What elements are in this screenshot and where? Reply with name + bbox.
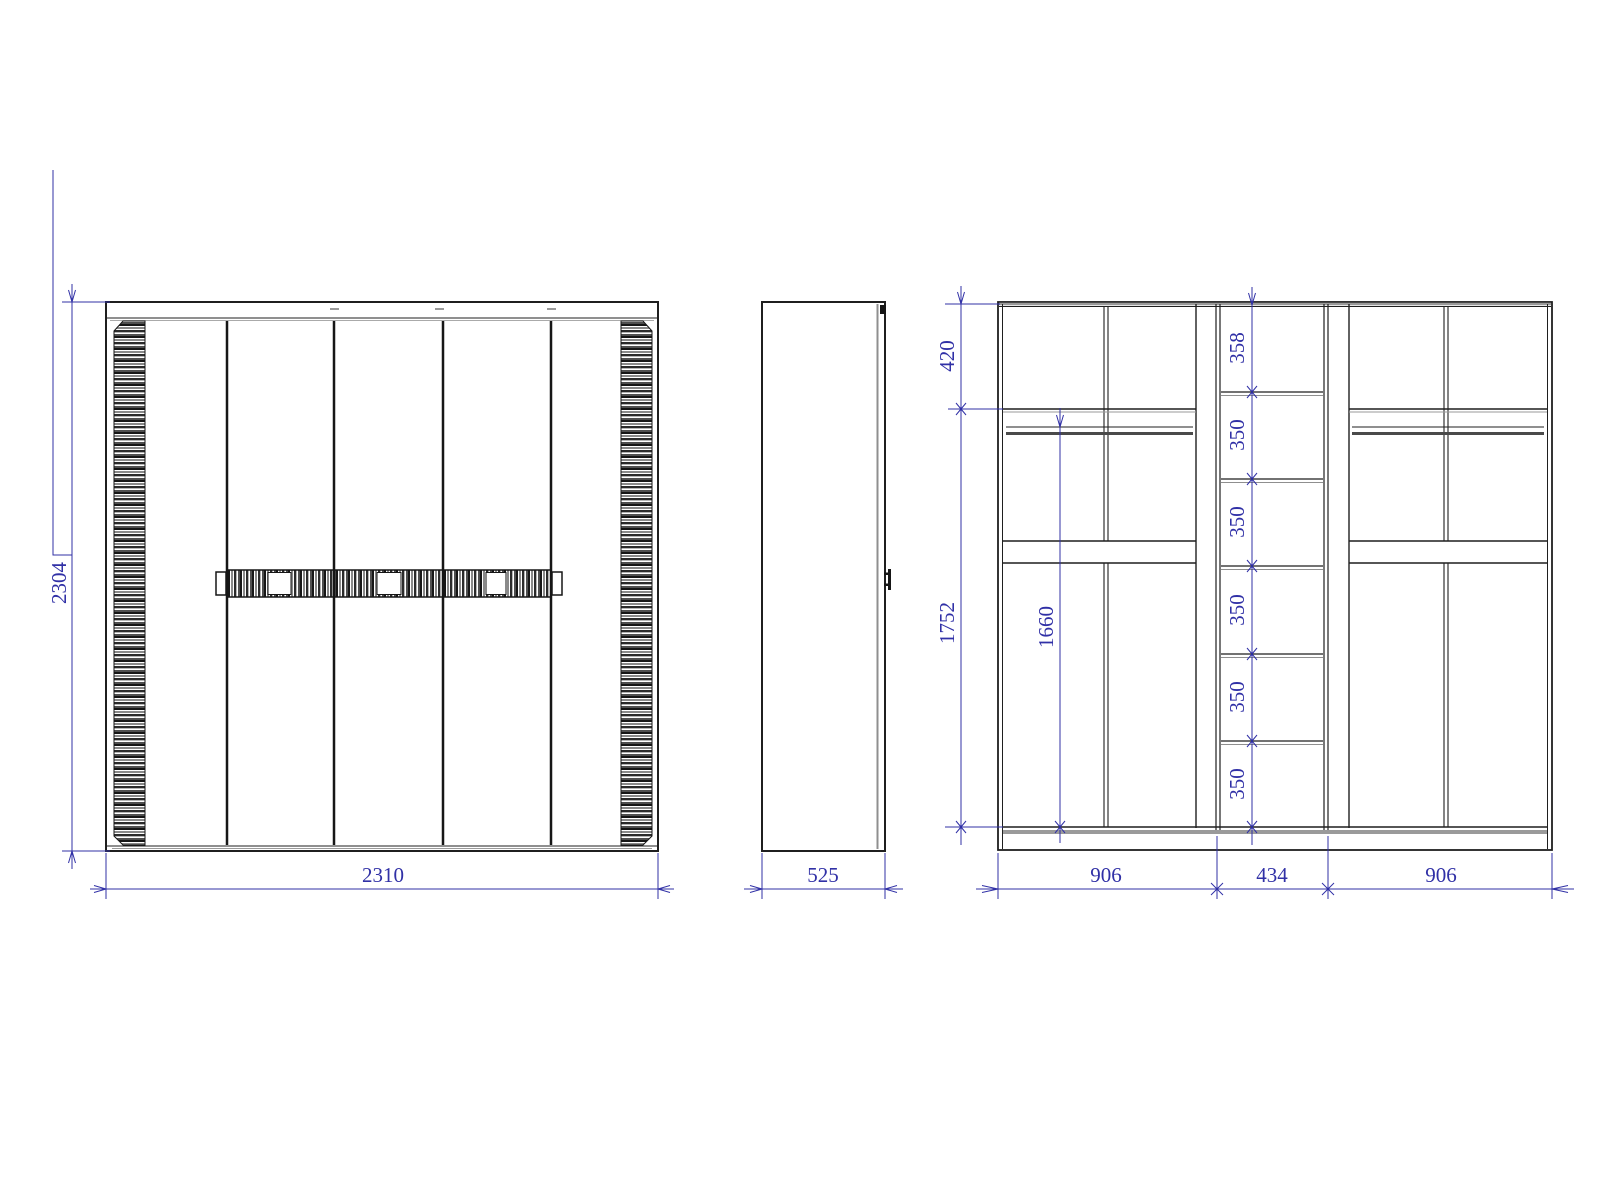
- dim-bottom-left-width: 906: [1090, 863, 1122, 887]
- band-end-cap-left: [216, 572, 226, 595]
- dim-interior-height: 1752: [935, 602, 959, 644]
- dim-middle-shelf-3: 350: [1225, 506, 1249, 538]
- wardrobe-drawing: 2304 2310 525 420 1752 1660 358 350 350 …: [0, 0, 1600, 1200]
- band-end-cap-right: [552, 572, 562, 595]
- cornice-mark: [435, 308, 444, 310]
- handle-band: [216, 570, 562, 597]
- drawing-sheet: 2304 2310 525 420 1752 1660 358 350 350 …: [0, 0, 1600, 1200]
- cornice-mark: [330, 308, 339, 310]
- dim-middle-shelf-4: 350: [1225, 594, 1249, 626]
- dim-hanging-height: 1660: [1034, 606, 1058, 648]
- dim-bottom-right-width: 906: [1425, 863, 1457, 887]
- dim-front-width: 2310: [362, 863, 404, 887]
- front-view: [106, 302, 658, 851]
- dim-middle-shelf-1: 358: [1225, 332, 1249, 364]
- cornice-mark: [547, 308, 556, 310]
- leader-front-height: [53, 170, 72, 555]
- internal-carcass: [998, 302, 1552, 850]
- dim-bottom-middle-width: 434: [1256, 863, 1288, 887]
- side-top-hinge-mark: [880, 305, 886, 314]
- dim-middle-shelf-2: 350: [1225, 419, 1249, 451]
- right-pilaster: [621, 321, 652, 845]
- side-carcass: [762, 302, 885, 851]
- dim-side-depth: 525: [807, 863, 839, 887]
- dim-middle-shelf-6: 350: [1225, 768, 1249, 800]
- dim-top-section: 420: [935, 340, 959, 372]
- dim-front-height: 2304: [47, 562, 71, 605]
- dim-middle-shelf-5: 350: [1225, 681, 1249, 713]
- side-view: [762, 302, 891, 851]
- left-pilaster: [114, 321, 145, 845]
- internal-view: [998, 302, 1552, 850]
